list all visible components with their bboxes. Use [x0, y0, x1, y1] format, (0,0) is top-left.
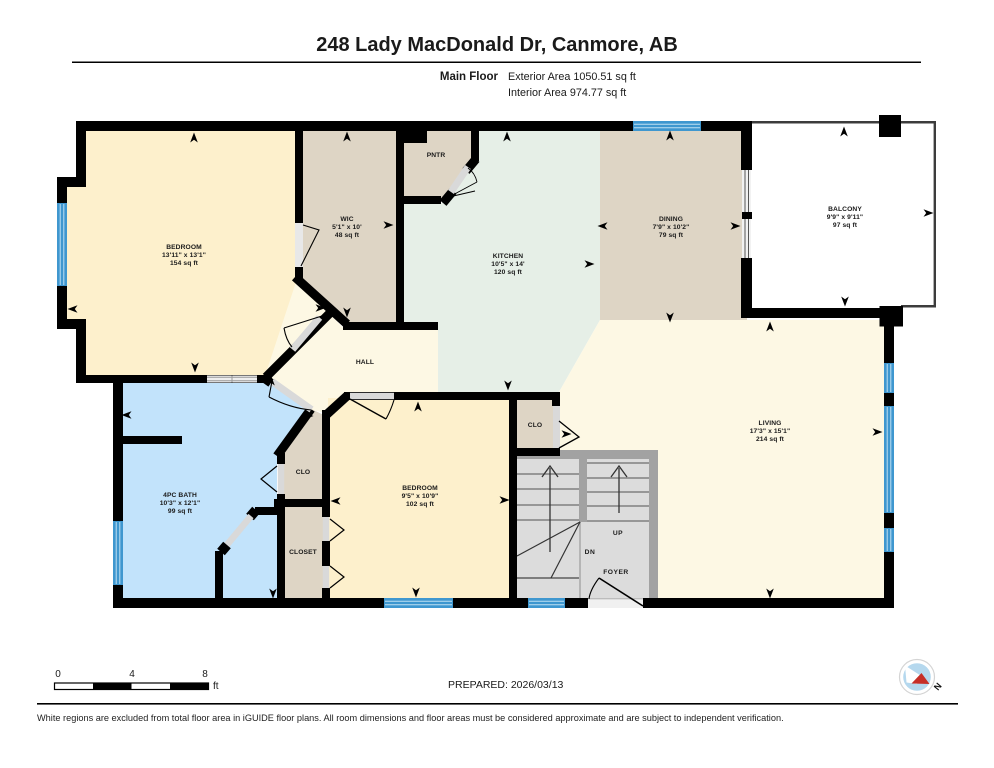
- svg-text:99 sq ft: 99 sq ft: [168, 508, 193, 515]
- svg-text:DN: DN: [585, 549, 596, 556]
- svg-text:FOYER: FOYER: [603, 569, 629, 576]
- svg-text:13'11" x 13'1": 13'11" x 13'1": [162, 252, 206, 259]
- svg-text:10'5" x 14': 10'5" x 14': [491, 261, 525, 268]
- svg-text:214 sq ft: 214 sq ft: [756, 436, 785, 443]
- svg-text:LIVING: LIVING: [759, 420, 782, 427]
- svg-text:4PC BATH: 4PC BATH: [163, 492, 197, 499]
- svg-text:KITCHEN: KITCHEN: [493, 253, 523, 260]
- svg-text:HALL: HALL: [356, 359, 374, 366]
- svg-text:4: 4: [129, 669, 135, 680]
- svg-text:UP: UP: [613, 530, 623, 537]
- svg-text:17'3" x 15'1": 17'3" x 15'1": [750, 428, 791, 435]
- svg-text:Exterior Area 1050.51 sq ft: Exterior Area 1050.51 sq ft: [508, 71, 636, 83]
- svg-text:8: 8: [202, 669, 208, 680]
- svg-text:9'5" x 10'9": 9'5" x 10'9": [402, 493, 439, 500]
- svg-text:BEDROOM: BEDROOM: [166, 244, 202, 251]
- svg-text:White regions are excluded fro: White regions are excluded from total fl…: [37, 713, 784, 723]
- svg-text:79 sq ft: 79 sq ft: [659, 232, 684, 239]
- svg-text:Interior Area 974.77 sq ft: Interior Area 974.77 sq ft: [508, 87, 626, 99]
- svg-text:Main Floor: Main Floor: [440, 71, 499, 83]
- svg-text:PNTR: PNTR: [427, 152, 446, 159]
- svg-text:154 sq ft: 154 sq ft: [170, 260, 199, 267]
- svg-text:CLO: CLO: [296, 469, 310, 476]
- svg-text:BALCONY: BALCONY: [828, 206, 862, 213]
- svg-text:PREPARED: 2026/03/13: PREPARED: 2026/03/13: [448, 679, 564, 691]
- svg-text:CLOSET: CLOSET: [289, 549, 318, 556]
- svg-text:5'1" x 10': 5'1" x 10': [332, 224, 362, 231]
- svg-text:BEDROOM: BEDROOM: [402, 485, 438, 492]
- svg-text:48 sq ft: 48 sq ft: [335, 232, 360, 239]
- svg-text:0: 0: [55, 669, 61, 680]
- svg-text:10'3" x 12'1": 10'3" x 12'1": [160, 500, 201, 507]
- svg-text:102 sq ft: 102 sq ft: [406, 501, 435, 508]
- svg-text:9'9" x 9'11": 9'9" x 9'11": [827, 214, 863, 221]
- svg-text:248 Lady MacDonald Dr, Canmore: 248 Lady MacDonald Dr, Canmore, AB: [316, 34, 678, 56]
- svg-text:97 sq ft: 97 sq ft: [833, 222, 858, 229]
- svg-text:ft: ft: [213, 681, 219, 692]
- svg-text:WIC: WIC: [340, 216, 353, 223]
- svg-text:120 sq ft: 120 sq ft: [494, 269, 523, 276]
- svg-text:7'9" x 10'2": 7'9" x 10'2": [653, 224, 690, 231]
- svg-text:CLO: CLO: [528, 422, 542, 429]
- svg-text:DINING: DINING: [659, 216, 683, 223]
